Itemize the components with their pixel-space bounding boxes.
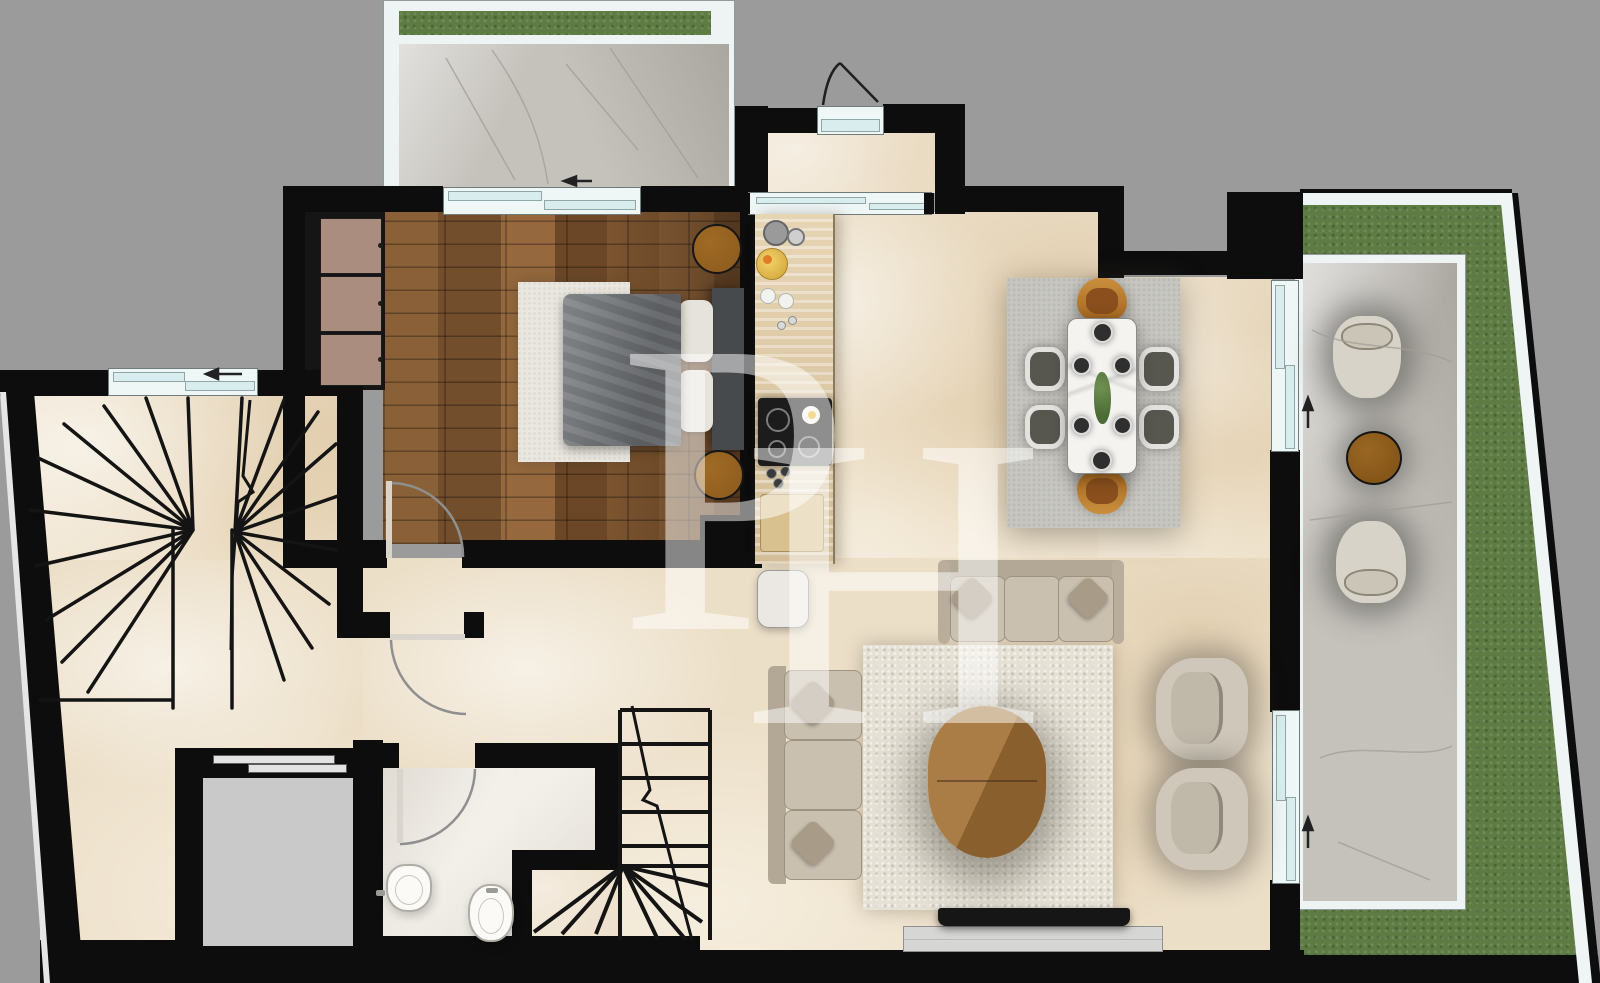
kitchen-slider-cap-right [924,193,934,214]
wall-hall-door-nub [464,612,484,638]
sofa-north-arm-left [938,560,950,644]
toilet-bowl [395,875,423,905]
kitchen-glass-1 [788,316,797,325]
wall-vestibule-lintel-right [883,104,935,133]
wall-vestibule-east [935,104,965,214]
vestibule-floor [768,133,935,193]
dining-side-chair-4 [1139,405,1179,449]
living-window-sash-2 [1286,797,1296,881]
wall-south-band-bath [360,936,700,983]
kitchen-bottle-2 [780,466,791,477]
wall-bedroom-south-left [283,540,387,568]
wall-east-mid [1270,450,1300,712]
tv [938,908,1130,926]
wardrobe-panel-2 [320,276,382,332]
stair-hall-window-sash-2 [185,381,255,391]
media-console [903,926,1163,952]
entry-door [823,63,878,105]
wardrobe-knob-1 [378,243,383,248]
wardrobe-knob-3 [378,357,383,362]
wall-south-band-living [690,950,1304,983]
outdoor-armchair-north [1333,316,1401,398]
dining-side-chair-1 [1025,347,1065,391]
kitchen-cutting-board [760,494,824,552]
bedroom-window-sash-2 [544,200,636,210]
outdoor-armchair-south-back [1344,569,1397,597]
bidet-faucet [486,888,498,893]
cooktop-egg-yolk [808,411,816,419]
coffee-table [928,706,1046,858]
wardrobe-panel-3 [320,334,382,386]
place-setting-5 [1113,416,1132,435]
kitchen-slider-cap-left [740,193,750,214]
outdoor-round-table [1346,431,1402,485]
kitchen-pan-small [787,228,805,246]
cooktop-burner-3 [768,440,786,458]
kitchen-slider-leaf-2 [869,203,927,210]
place-setting-2 [1072,356,1091,375]
wall-step-vertical [1098,186,1124,279]
entry-door-arc [823,63,840,105]
kitchen-bottle-3 [773,478,784,489]
nightstand-north [692,224,742,274]
place-setting-6 [1091,450,1112,471]
dining-window-sash-1 [1275,285,1285,369]
kitchen-plate-2 [778,293,794,309]
cooktop-burner-2 [798,436,820,458]
wall-bath-step-h [512,850,619,870]
wall-vestibule-west [735,106,768,193]
lounge-chair-2-seat [1171,782,1223,853]
stair-hall-window [108,368,258,396]
stair-hall-window-sash-1 [113,372,185,382]
kitchen-pan-large [763,220,789,246]
wall-kitchen-north [963,186,1103,212]
dining-side-chair-1-seat [1030,352,1060,385]
sofa-west-cushion-2 [784,740,862,810]
kitchen-glass-2 [777,321,786,330]
dining-side-chair-2 [1025,405,1065,449]
wall-bedroom-north-right [641,186,742,212]
wall-bath-north-right [475,743,599,768]
dining-head-chair-south [1077,470,1127,514]
sofa-north-cushion-2 [1004,576,1060,642]
entry-door-sill [817,106,884,135]
terrace-east-top-rail [1300,193,1512,205]
elevator-cab [203,778,353,946]
living-window-east [1272,710,1300,884]
bidet-basin [478,898,504,934]
bed-duvet [563,294,681,446]
toilet-valve [376,890,385,896]
terrace-nw-grass [399,11,711,35]
coffee-table-seam [937,780,1036,782]
wall-hall-door-left [337,612,390,638]
elevator-sliding-door-leaf-2 [248,764,347,773]
dining-side-chair-3 [1139,347,1179,391]
bidet [468,884,514,942]
sofa-north [938,560,1124,644]
wall-south-band-left [40,940,180,983]
wall-elevator-west [175,748,205,956]
lounge-chair-1 [1156,658,1248,760]
wall-east-low [1270,880,1300,958]
wall-bedroom-north-left [283,186,443,212]
wall-bath-step-v [512,868,532,943]
bed-headboard [712,288,744,450]
kitchen-stool [757,570,809,628]
toilet [386,864,432,912]
entry-door-sill-glass [821,119,880,132]
wall-elevator-east [353,740,383,958]
kitchen-fruit [763,255,772,264]
living-window-sash-1 [1276,715,1286,801]
kitchen-sliding-door [748,192,932,215]
dining-head-chair-north-seat [1086,288,1118,314]
bedroom-window-sash-1 [448,191,542,201]
kitchen-slider-leaf-1 [756,197,866,204]
dining-side-chair-3-seat [1144,352,1174,385]
bedroom-terrace-window [443,187,641,215]
dining-side-chair-4-seat [1144,410,1174,443]
wall-ne-corner-block [1227,192,1303,279]
dining-head-chair-north [1077,278,1127,322]
wall-stairhall-east [337,370,363,618]
bed-pillow-1 [679,300,713,362]
dining-head-chair-south-seat [1086,478,1118,504]
kitchen-plate-1 [760,288,776,304]
under-stair-floor [530,868,620,940]
wardrobe-knob-2 [378,301,383,306]
wall-south-band-terrace [1230,955,1600,983]
terrace-nw-floor [399,44,729,190]
place-setting-1 [1092,322,1113,343]
kitchen-cooktop [758,398,832,466]
place-setting-3 [1113,356,1132,375]
sofa-west [768,666,864,884]
dining-centerpiece-plant [1094,372,1111,424]
lounge-chair-1-seat [1171,672,1223,743]
kitchen-bottle-1 [766,468,777,479]
wall-south-band-elevator [175,944,385,983]
bed-pillow-2 [679,370,713,432]
nightstand-south [694,450,744,500]
wall-se-pier [700,515,762,565]
cooktop-burner-1 [766,408,790,432]
dining-window-east [1271,280,1299,452]
dining-window-sash-2 [1285,365,1295,449]
entry-door-leaf [840,63,878,102]
dining-side-chair-2-seat [1030,410,1060,443]
elevator-sliding-door-leaf-1 [213,755,335,764]
wall-bath-north-left [377,743,399,768]
outdoor-armchair-south [1336,521,1406,603]
wall-vestibule-lintel-left [768,108,818,133]
lounge-chair-2 [1156,768,1248,870]
wardrobe-panel-1 [320,218,382,274]
kitchen-fruit-bowl [756,248,788,280]
floor-plan-canvas: P H [0,0,1600,983]
outdoor-armchair-north-back [1341,323,1393,351]
place-setting-4 [1072,416,1091,435]
wall-stairhall-north-left [0,370,112,396]
